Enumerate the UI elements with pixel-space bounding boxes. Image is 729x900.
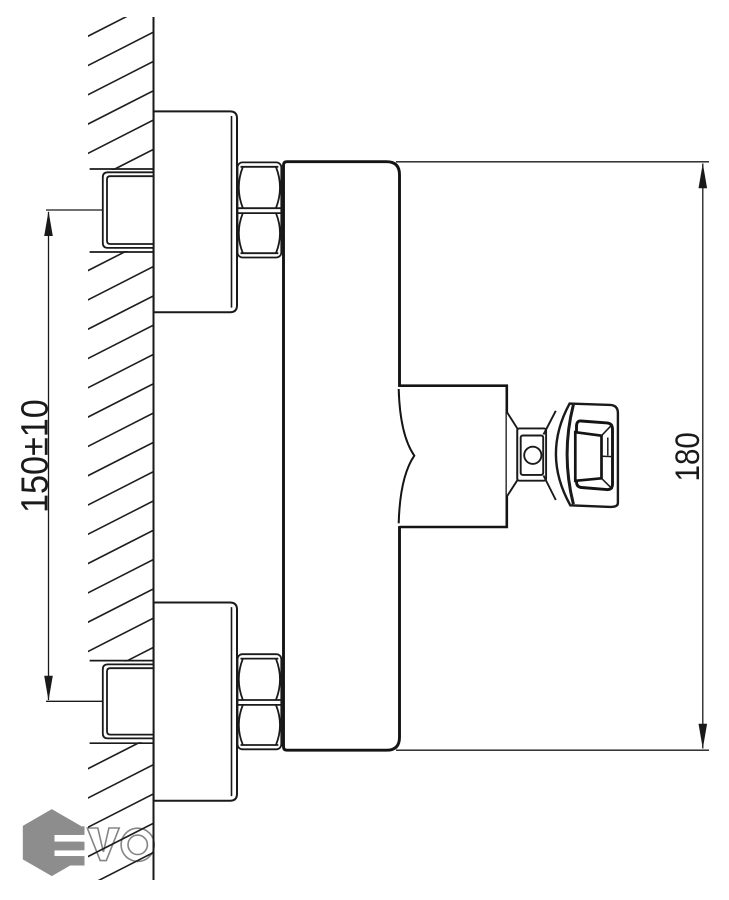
svg-text:180: 180 — [668, 432, 706, 481]
svg-text:150±10: 150±10 — [13, 399, 56, 513]
